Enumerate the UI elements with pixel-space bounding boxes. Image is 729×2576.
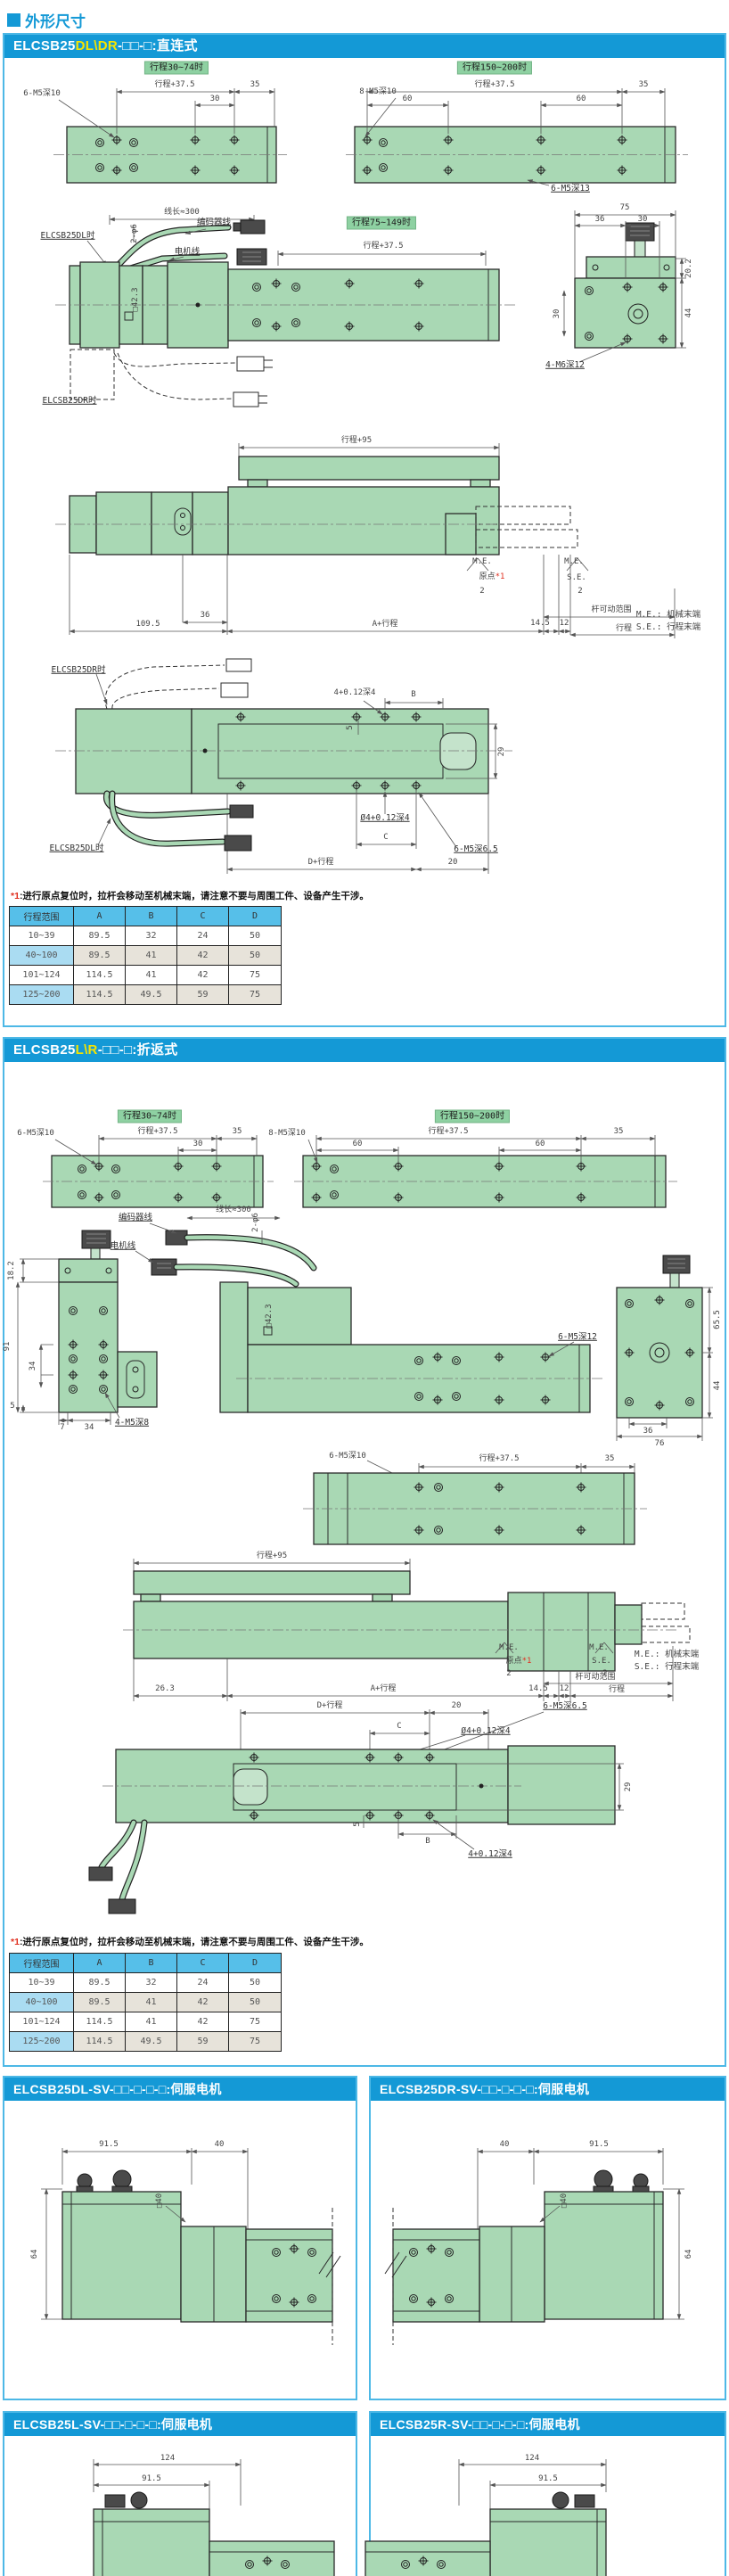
dim-label: 29	[625, 1782, 634, 1792]
table-cell: 50	[229, 926, 282, 946]
dim-label: 行程+37.5	[363, 243, 403, 251]
dim-label: 线长≈300	[216, 1206, 251, 1215]
dim-label: 91	[4, 1342, 12, 1352]
cable-callout: 编码器线	[197, 218, 231, 227]
table-cell: 89.5	[74, 1973, 126, 1993]
dim-label: 91.5	[538, 2475, 558, 2484]
table-header-cell: 行程范围	[10, 1954, 74, 1973]
stroke-range-tag: 行程30~74时	[118, 1110, 182, 1123]
dim-label: 行程	[609, 1686, 625, 1695]
model-callout: ELCSB25DR时	[43, 397, 97, 406]
model-callout: ELCSB25DL时	[41, 232, 95, 241]
table-cell: 40~100	[10, 946, 74, 966]
dim-label: 5	[10, 1403, 14, 1411]
legend-se: S.E.: 行程末端	[636, 623, 700, 632]
dim-label: 91.5	[589, 2141, 609, 2150]
dim-label: 35	[639, 81, 649, 90]
model-callout: ELCSB25DL时	[50, 844, 104, 853]
table-cell: 49.5	[126, 2032, 177, 2052]
table-header-row: 行程范围 A B C D	[10, 907, 282, 926]
origin-text: 原点	[479, 572, 496, 581]
table-cell: 41	[126, 2012, 177, 2032]
model-suffix: -□□-□:直连式	[118, 38, 198, 53]
dim-label: 91.5	[142, 2475, 161, 2484]
table-row: 125~200114.549.55975	[10, 985, 282, 1005]
dim-label: 60	[353, 1140, 363, 1149]
dim-label: 124	[525, 2455, 539, 2464]
dim-label: 行程+37.5	[474, 81, 514, 90]
dim-label: 行程+95	[341, 437, 372, 446]
table-header-cell: B	[126, 1954, 177, 1973]
table-cell: 89.5	[74, 1993, 126, 2012]
model-prefix: ELCSB25	[13, 1042, 76, 1058]
dim-label: 64	[31, 2250, 40, 2259]
thread-callout: 6-M5深6.5	[543, 1702, 587, 1711]
table-cell: 125~200	[10, 985, 74, 1005]
table-row: 10~3989.5322450	[10, 1973, 282, 1993]
model-name: ELCSB25DL-SV-□□-□-□-□:伺服电机	[13, 2082, 222, 2096]
table-header-cell: D	[229, 907, 282, 926]
table-cell: 42	[177, 1993, 229, 2012]
dim-label: 44	[685, 309, 694, 318]
panel-servo-l: ELCSB25L-SV-□□-□-□-□:伺服电机	[3, 2411, 357, 2576]
table-cell: 24	[177, 926, 229, 946]
dim-label: 36	[201, 612, 210, 621]
panel-return-type: ELCSB25L\R-□□-□:折返式	[3, 1037, 726, 2067]
dim-label: 14.5	[528, 1685, 548, 1694]
dim-label: 2	[577, 588, 582, 597]
dim-label: 20	[448, 859, 458, 868]
dim-label: 30	[638, 216, 648, 225]
panel-servo-r-header: ELCSB25R-SV-□□-□-□-□:伺服电机	[371, 2413, 725, 2436]
dim-label: 29	[498, 747, 507, 757]
dim-label: □40	[156, 2193, 165, 2208]
thread-callout: 6-M5深10	[17, 1130, 54, 1139]
panel-direct-header: ELCSB25DL\DR-□□-□:直连式	[4, 35, 725, 58]
dim-label: D+行程	[317, 1702, 343, 1711]
dim-label: □40	[561, 2193, 569, 2208]
dim-label: 行程+37.5	[428, 1128, 468, 1137]
table-cell: 59	[177, 985, 229, 1005]
model-suffix: -□□-□:折返式	[98, 1042, 178, 1058]
footnote: *1:进行原点复位时，拉杆会移动至机械末端，请注意不要与周围工件、设备产生干涉。	[11, 1935, 369, 1948]
dim-label: □42.3	[132, 287, 141, 311]
stroke-spec-table: 行程范围 A B C D 10~3989.5322450 40~10089.54…	[9, 1953, 282, 2052]
thread-callout: 8-M5深10	[268, 1130, 306, 1139]
table-row: 125~200114.549.55975	[10, 2032, 282, 2052]
legend-me: M.E.: 机械末端	[635, 1650, 699, 1659]
dim-label: 34	[29, 1362, 38, 1371]
dim-label: 40	[500, 2141, 510, 2150]
table-cell: 101~124	[10, 2012, 74, 2032]
dim-label: 12	[560, 1685, 569, 1694]
thread-callout: 6-M5深10	[23, 90, 61, 99]
table-header-cell: A	[74, 907, 126, 926]
thread-callout: 6-M5深10	[329, 1453, 366, 1461]
panel-direct-type: ELCSB25DL\DR-□□-□:直连式	[3, 33, 726, 1027]
table-cell: 89.5	[74, 926, 126, 946]
table-cell: 40~100	[10, 1993, 74, 2012]
footnote-ref: *1	[11, 891, 20, 901]
origin-label: 原点*1	[506, 1658, 532, 1667]
dim-label: 12	[560, 620, 569, 629]
model-name: ELCSB25DR-SV-□□-□-□-□:伺服电机	[380, 2082, 589, 2096]
model-variant: DL\DR	[76, 38, 118, 53]
panel-return-header: ELCSB25L\R-□□-□:折返式	[4, 1039, 725, 1062]
dim-label: C	[397, 1723, 401, 1732]
section-marker-icon	[7, 13, 20, 27]
dim-label: 4+0.12深4	[468, 1850, 512, 1859]
se-label: S.E.	[592, 1658, 611, 1667]
dim-label: 18.2	[8, 1261, 17, 1280]
table-cell: 75	[229, 2032, 282, 2052]
table-row: 101~124114.5414275	[10, 2012, 282, 2032]
table-cell: 50	[229, 946, 282, 966]
cable-callout: 电机线	[111, 1242, 136, 1251]
dim-label: 35	[250, 81, 260, 90]
footnote-text: :进行原点复位时，拉杆会移动至机械末端，请注意不要与周围工件、设备产生干涉。	[20, 891, 369, 901]
table-header-row: 行程范围 A B C D	[10, 1954, 282, 1973]
table-cell: 101~124	[10, 966, 74, 985]
table-cell: 125~200	[10, 2032, 74, 2052]
stroke-spec-table: 行程范围 A B C D 10~3989.5322450 40~10089.54…	[9, 906, 282, 1005]
table-cell: 50	[229, 1993, 282, 2012]
dim-label: 4+0.12深4	[334, 689, 376, 698]
me-label: M.E.	[499, 1644, 519, 1653]
dim-label: 杆可动范围	[591, 606, 631, 615]
table-cell: 75	[229, 985, 282, 1005]
table-cell: 32	[126, 926, 177, 946]
table-row: 40~10089.5414250	[10, 1993, 282, 2012]
table-header-cell: 行程范围	[10, 907, 74, 926]
table-cell: 75	[229, 2012, 282, 2032]
table-cell: 41	[126, 966, 177, 985]
dim-label: 65.5	[714, 1310, 723, 1329]
model-prefix: ELCSB25	[13, 38, 76, 53]
dim-label: 20	[452, 1702, 462, 1711]
table-header-cell: C	[177, 1954, 229, 1973]
dim-label: 2-φ6	[131, 224, 140, 243]
dim-label: 35	[605, 1455, 615, 1464]
origin-text: 原点	[506, 1657, 522, 1666]
dim-label: 2	[479, 588, 484, 597]
dim-label: 20.2	[685, 259, 694, 278]
dim-label: 30	[553, 309, 562, 319]
table-header-cell: D	[229, 1954, 282, 1973]
me-label: M.E.	[472, 558, 492, 567]
me-label: M.E.	[589, 1644, 609, 1653]
dim-label: 36	[643, 1428, 653, 1436]
dim-label: 行程+37.5	[154, 81, 194, 90]
dim-label: 75	[620, 204, 630, 213]
panel-servo-dl: ELCSB25DL-SV-□□-□-□-□:伺服电机	[3, 2076, 357, 2400]
page-title: 外形尺寸	[7, 9, 86, 31]
thread-callout: 4-M5深8	[115, 1419, 149, 1428]
thread-callout: 8-M5深10	[359, 88, 397, 97]
dim-label: 44	[714, 1381, 723, 1391]
table-cell: 59	[177, 2032, 229, 2052]
dim-label: 行程+37.5	[137, 1128, 177, 1137]
dim-label: 30	[210, 95, 220, 104]
dim-label: 30	[193, 1140, 203, 1149]
table-cell: 114.5	[74, 2012, 126, 2032]
table-header-cell: C	[177, 907, 229, 926]
model-callout: ELCSB25DR时	[52, 666, 106, 675]
table-cell: 49.5	[126, 985, 177, 1005]
dim-label: 40	[215, 2141, 225, 2150]
dim-label: B	[425, 1838, 430, 1847]
dim-label: 35	[614, 1128, 624, 1137]
dim-label: C	[383, 834, 388, 843]
footnote-ref: *1	[11, 1937, 20, 1947]
dim-label: 36	[595, 216, 605, 225]
table-cell: 114.5	[74, 966, 126, 985]
dim-label: 行程+95	[257, 1552, 287, 1561]
model-name: ELCSB25R-SV-□□-□-□-□:伺服电机	[380, 2417, 580, 2432]
thread-callout: 6-M5深13	[551, 185, 590, 193]
table-cell: 41	[126, 1993, 177, 2012]
table-row: 40~10089.5414250	[10, 946, 282, 966]
table-cell: 41	[126, 946, 177, 966]
dim-label: 杆可动范围	[575, 1674, 615, 1683]
stroke-range-tag: 行程150~200时	[457, 62, 532, 75]
footnote-text: :进行原点复位时，拉杆会移动至机械末端，请注意不要与周围工件、设备产生干涉。	[20, 1937, 369, 1947]
table-cell: 32	[126, 1973, 177, 1993]
dim-label: 2	[506, 1670, 511, 1679]
table-cell: 42	[177, 2012, 229, 2032]
table-header-cell: A	[74, 1954, 126, 1973]
table-cell: 114.5	[74, 985, 126, 1005]
panel-servo-dl-header: ELCSB25DL-SV-□□-□-□-□:伺服电机	[4, 2078, 356, 2101]
cable-callout: 编码器线	[119, 1214, 152, 1222]
model-variant: L\R	[76, 1042, 98, 1058]
origin-ref: *1	[496, 572, 505, 581]
table-header-cell: B	[126, 907, 177, 926]
thread-callout: 6-M5深6.5	[454, 845, 498, 854]
dim-label: 5	[354, 1822, 363, 1826]
dim-label: 34	[85, 1424, 94, 1433]
table-cell: 50	[229, 1973, 282, 1993]
legend-me: M.E.: 机械末端	[636, 611, 700, 620]
dim-label: 64	[685, 2250, 694, 2259]
dim-label: 35	[233, 1128, 242, 1137]
panel-servo-dr-header: ELCSB25DR-SV-□□-□-□-□:伺服电机	[371, 2078, 725, 2101]
table-cell: 10~39	[10, 1973, 74, 1993]
table-row: 101~124114.5414275	[10, 966, 282, 985]
table-cell: 89.5	[74, 946, 126, 966]
dim-label: 行程+37.5	[479, 1455, 519, 1464]
dim-label: 109.5	[135, 621, 160, 630]
dim-label: B	[411, 691, 415, 700]
panel-servo-l-header: ELCSB25L-SV-□□-□-□-□:伺服电机	[4, 2413, 356, 2436]
dim-label: 2-φ6	[252, 1213, 261, 1232]
table-cell: 42	[177, 966, 229, 985]
dim-label: 14.5	[530, 620, 550, 629]
stroke-range-tag: 行程30~74时	[144, 62, 209, 75]
stroke-range-tag: 行程75~149时	[347, 217, 416, 230]
dim-label: 124	[160, 2455, 175, 2464]
footnote: *1:进行原点复位时，拉杆会移动至机械末端，请注意不要与周围工件、设备产生干涉。	[11, 889, 369, 902]
dim-label: 26.3	[155, 1685, 175, 1694]
dim-label: A+行程	[371, 1685, 397, 1694]
table-cell: 114.5	[74, 2032, 126, 2052]
table-cell: 75	[229, 966, 282, 985]
dim-label: 91.5	[99, 2141, 119, 2150]
dim-label: 76	[655, 1440, 665, 1449]
panel-servo-r: ELCSB25R-SV-□□-□-□-□:伺服电机	[369, 2411, 726, 2576]
table-cell: 10~39	[10, 926, 74, 946]
thread-callout: 4-M6深12	[545, 361, 585, 370]
dim-label: 行程	[616, 625, 632, 634]
me-label: M.E.	[564, 558, 584, 567]
stroke-range-tag: 行程150~200时	[435, 1110, 510, 1123]
dim-label: D+行程	[308, 859, 334, 868]
dim-label: 60	[403, 95, 413, 104]
dimension-sheet-page: 外形尺寸 ELCSB25DL\DR-□□-□:直连式 ELCSB25L\R-□□…	[0, 0, 729, 2576]
dim-label: 5	[347, 725, 356, 729]
table-cell: 42	[177, 946, 229, 966]
cable-callout: 电机线	[175, 248, 201, 257]
table-cell: 24	[177, 1973, 229, 1993]
dim-label: Ø4+0.12深4	[360, 814, 409, 823]
se-label: S.E.	[567, 574, 586, 583]
model-name: ELCSB25L-SV-□□-□-□-□:伺服电机	[13, 2417, 212, 2432]
dim-label: 线长≈300	[164, 209, 200, 218]
dim-label: □42.3	[266, 1304, 274, 1328]
origin-label: 原点*1	[479, 573, 505, 582]
panel-servo-dr: ELCSB25DR-SV-□□-□-□-□:伺服电机	[369, 2076, 726, 2400]
legend-se: S.E.: 行程末端	[635, 1663, 699, 1672]
dim-label: Ø4+0.12深4	[461, 1727, 510, 1736]
dim-label: 60	[536, 1140, 545, 1149]
dim-label: 60	[577, 95, 586, 104]
origin-ref: *1	[522, 1657, 532, 1666]
page-title-text: 外形尺寸	[25, 9, 86, 31]
thread-callout: 6-M5深12	[558, 1333, 597, 1342]
dim-label: A+行程	[373, 621, 398, 630]
table-row: 10~3989.5322450	[10, 926, 282, 946]
dim-label: 7	[60, 1424, 64, 1433]
